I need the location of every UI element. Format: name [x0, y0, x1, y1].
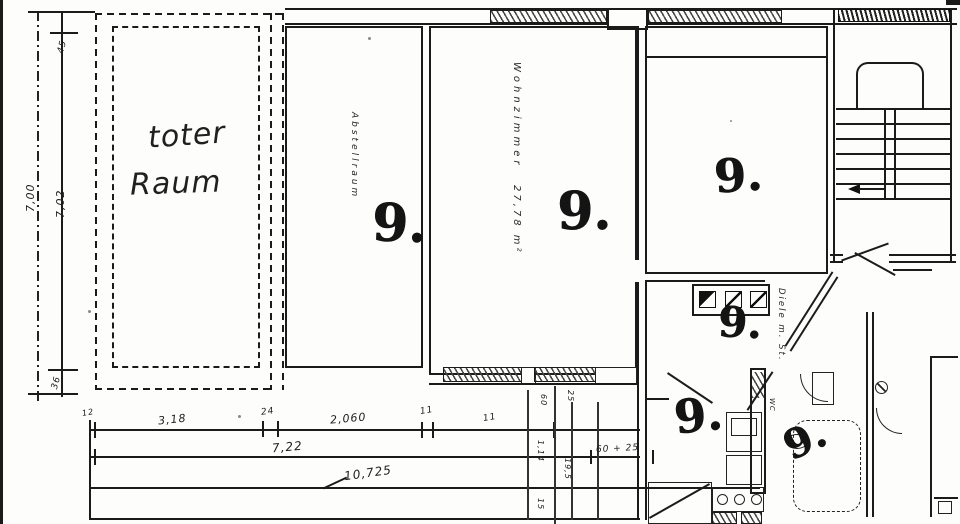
toter-raum-outline-bottom — [95, 388, 273, 390]
window-wohnzimmer-2 — [534, 367, 597, 382]
dim-label-left-top: 45 — [56, 39, 69, 55]
neighbour-door-arc — [876, 408, 902, 434]
entry-wall-diagonal-b — [790, 276, 839, 351]
dim-label-row2-right: 60 + 25 — [596, 443, 640, 455]
dim-label: 3,18 — [157, 412, 187, 428]
bath-door-arc — [800, 374, 828, 402]
dim-extension-line — [597, 402, 599, 520]
stair-step — [836, 108, 950, 110]
dim-tick — [262, 421, 264, 437]
stair-wall-left — [833, 10, 835, 262]
stair-step — [836, 138, 950, 140]
floor-plan-scan: 7,00 7,02 45 36 toter Raum Abstellraum 9… — [0, 0, 960, 524]
unit-number-mark-5: 9. — [672, 390, 725, 441]
kitchen-cabinet-lower — [726, 455, 762, 485]
dim-row2-line — [89, 456, 640, 458]
dim-label-vert: 1,14 — [536, 440, 545, 462]
dim-label: 11 — [482, 412, 497, 424]
dim-row3-line — [89, 487, 760, 489]
dim-label-vert: 60 — [539, 394, 548, 406]
dim-label: 12 — [81, 407, 95, 418]
dim-label-left-inner: 7,02 — [54, 190, 67, 219]
scan-speckle — [730, 120, 732, 122]
stove-burner-3 — [751, 494, 762, 505]
dim-label-vert: 19,5 — [563, 458, 572, 480]
scan-speckle — [88, 310, 91, 313]
toter-raum-outline-right-1 — [270, 13, 272, 390]
neighbour-wall-h — [893, 269, 932, 271]
unit-number-mark-3: 9. — [712, 150, 763, 199]
dim-label-row3: 10,725 — [343, 463, 392, 484]
room-right-bottom-inner — [645, 280, 765, 282]
dim-tick — [432, 422, 434, 438]
window-top-2 — [648, 10, 782, 23]
unit-number-mark-2: 9. — [557, 186, 611, 238]
window-wohnzimmer-1 — [443, 367, 523, 382]
dim-tick — [277, 421, 279, 437]
dim-bottom-line — [89, 518, 640, 520]
dim-tick — [50, 32, 78, 34]
dim-label-left-outer: 7,00 — [24, 184, 37, 213]
dim-tick — [590, 450, 592, 464]
toter-raum-outline-left — [95, 13, 97, 390]
entry-wall-diagonal-a — [785, 271, 834, 346]
dim-label: 11 — [419, 405, 434, 417]
neighbour-fixture — [875, 381, 888, 394]
stair-step — [836, 153, 950, 155]
stair-step — [836, 198, 950, 200]
dim-label-row2: 7,22 — [271, 439, 303, 456]
dim-extension-line — [554, 386, 556, 524]
room-area-wohnzimmer: 27,78 m² — [511, 185, 522, 255]
window-sill-line — [429, 383, 639, 385]
dim-tick — [28, 11, 95, 13]
stair-step — [836, 168, 950, 170]
kitchen-wall-top-left — [645, 398, 669, 400]
stair-stringer-a — [884, 108, 886, 200]
stair-step — [836, 123, 950, 125]
stair-arrow-tail — [858, 188, 886, 190]
scan-edge-left — [0, 0, 3, 524]
unit-number-mark-1: 9. — [371, 197, 427, 251]
neighbour-wall-v — [930, 357, 932, 517]
dim-tick — [652, 450, 654, 464]
dim-label: 2,060 — [330, 410, 367, 426]
shaft-cell-1 — [699, 291, 716, 308]
stair-landing-outline — [856, 62, 924, 108]
dim-tick — [94, 449, 96, 465]
scan-speckle — [368, 37, 371, 40]
bath-wall-right-b — [872, 312, 874, 517]
dim-label-vert: 15 — [536, 498, 545, 510]
dim-tick — [94, 422, 96, 438]
window-stairwell — [838, 9, 950, 22]
unit-number-mark-4: 9. — [717, 301, 763, 345]
dim-tick — [421, 422, 423, 438]
dim-tick — [48, 369, 78, 371]
room-right-beam-line — [645, 56, 828, 58]
dim-left-end — [89, 420, 91, 520]
window-top-1 — [490, 10, 607, 23]
toter-raum-outline-top — [95, 13, 283, 15]
kitchen-hatch-1 — [712, 512, 737, 524]
dim-line-left-outer — [37, 11, 39, 401]
wall-stub — [595, 367, 637, 384]
stair-stringer-b — [894, 108, 896, 200]
bath-wall-right-a — [866, 312, 868, 517]
scan-speckle — [238, 415, 241, 418]
dim-label-vert: 25 — [566, 390, 575, 402]
dim-tick — [28, 393, 78, 395]
stove-burner-1 — [717, 494, 728, 505]
stove-burner-2 — [734, 494, 745, 505]
toter-raum-outline-right-2 — [282, 13, 284, 390]
dim-row1-line — [89, 429, 640, 431]
neighbour-fixture-box — [938, 501, 952, 514]
dim-extension-line — [527, 390, 529, 520]
kitchen-hatch-2 — [741, 512, 762, 524]
room-label-wohnzimmer: Wohnzimmer — [511, 62, 522, 168]
room-label-toter-raum-line1: toter — [147, 115, 227, 155]
neighbour-wall-h2 — [930, 356, 958, 358]
room-label-diele: Diele m. St. — [776, 288, 786, 362]
stair-wall-right — [950, 8, 952, 262]
dim-label: 24 — [260, 406, 275, 418]
scan-artifact-top-right — [946, 0, 960, 5]
kitchen-cabinet-inner — [731, 418, 757, 436]
room-label-toter-raum-line2: Raum — [129, 164, 222, 202]
room-label-wc: WC — [768, 398, 776, 412]
room-label-abstellraum: Abstellraum — [349, 112, 359, 199]
neighbour-wall-h3 — [934, 497, 958, 499]
